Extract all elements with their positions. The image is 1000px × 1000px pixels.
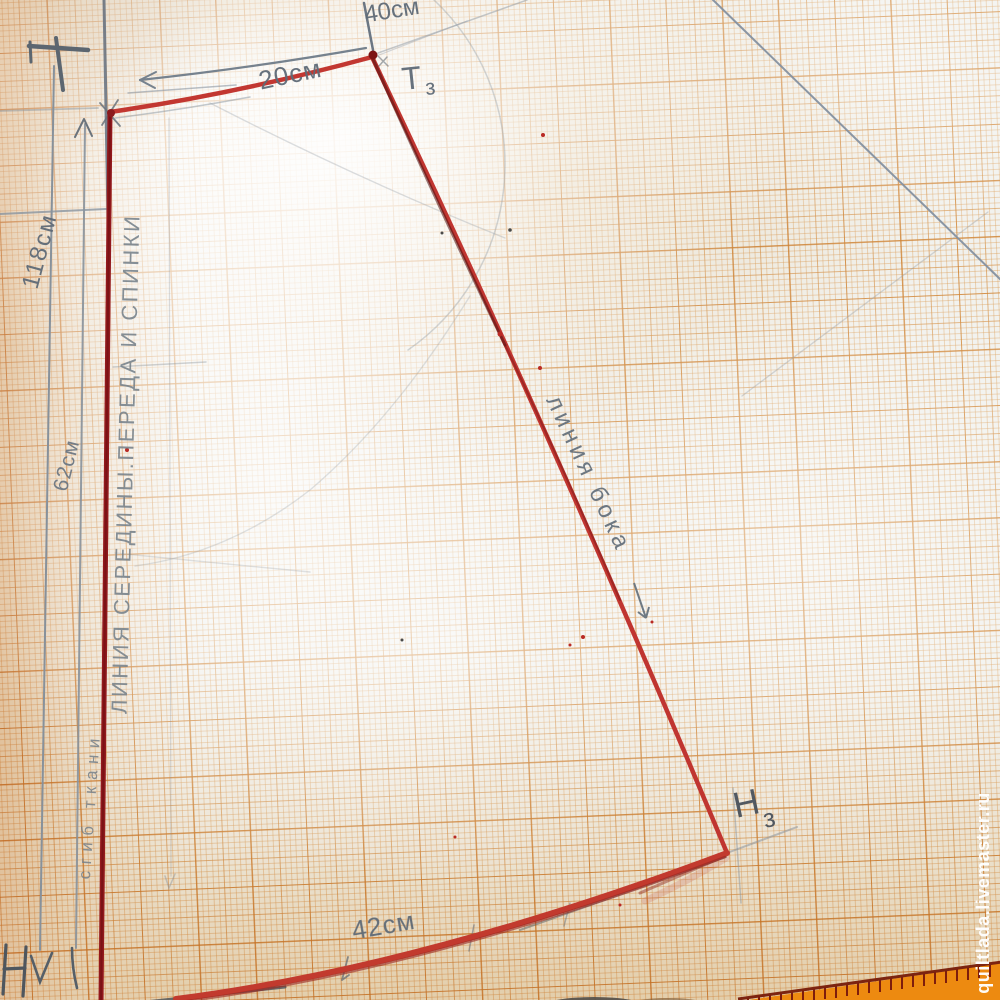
svg-text:ЛИНИЯ СЕРЕДИНЫ.ПЕРЕДА И СПИНКИ: ЛИНИЯ СЕРЕДИНЫ.ПЕРЕДА И СПИНКИ [106,213,144,714]
svg-text:Н: Н [729,780,763,826]
svg-text:quiltlada.livemaster.ru: quiltlada.livemaster.ru [973,792,993,994]
svg-text:20см: 20см [256,53,325,96]
svg-text:40см: 40см [362,0,421,28]
svg-text:62см: 62см [49,437,84,493]
svg-text:з: з [760,802,778,834]
svg-text:Т: Т [400,59,423,97]
svg-text:118см: 118см [17,210,63,291]
svg-text:з: з [424,74,437,100]
svg-text:42см: 42см [349,905,417,946]
svg-text:сгиб ткани: сгиб ткани [75,731,104,880]
